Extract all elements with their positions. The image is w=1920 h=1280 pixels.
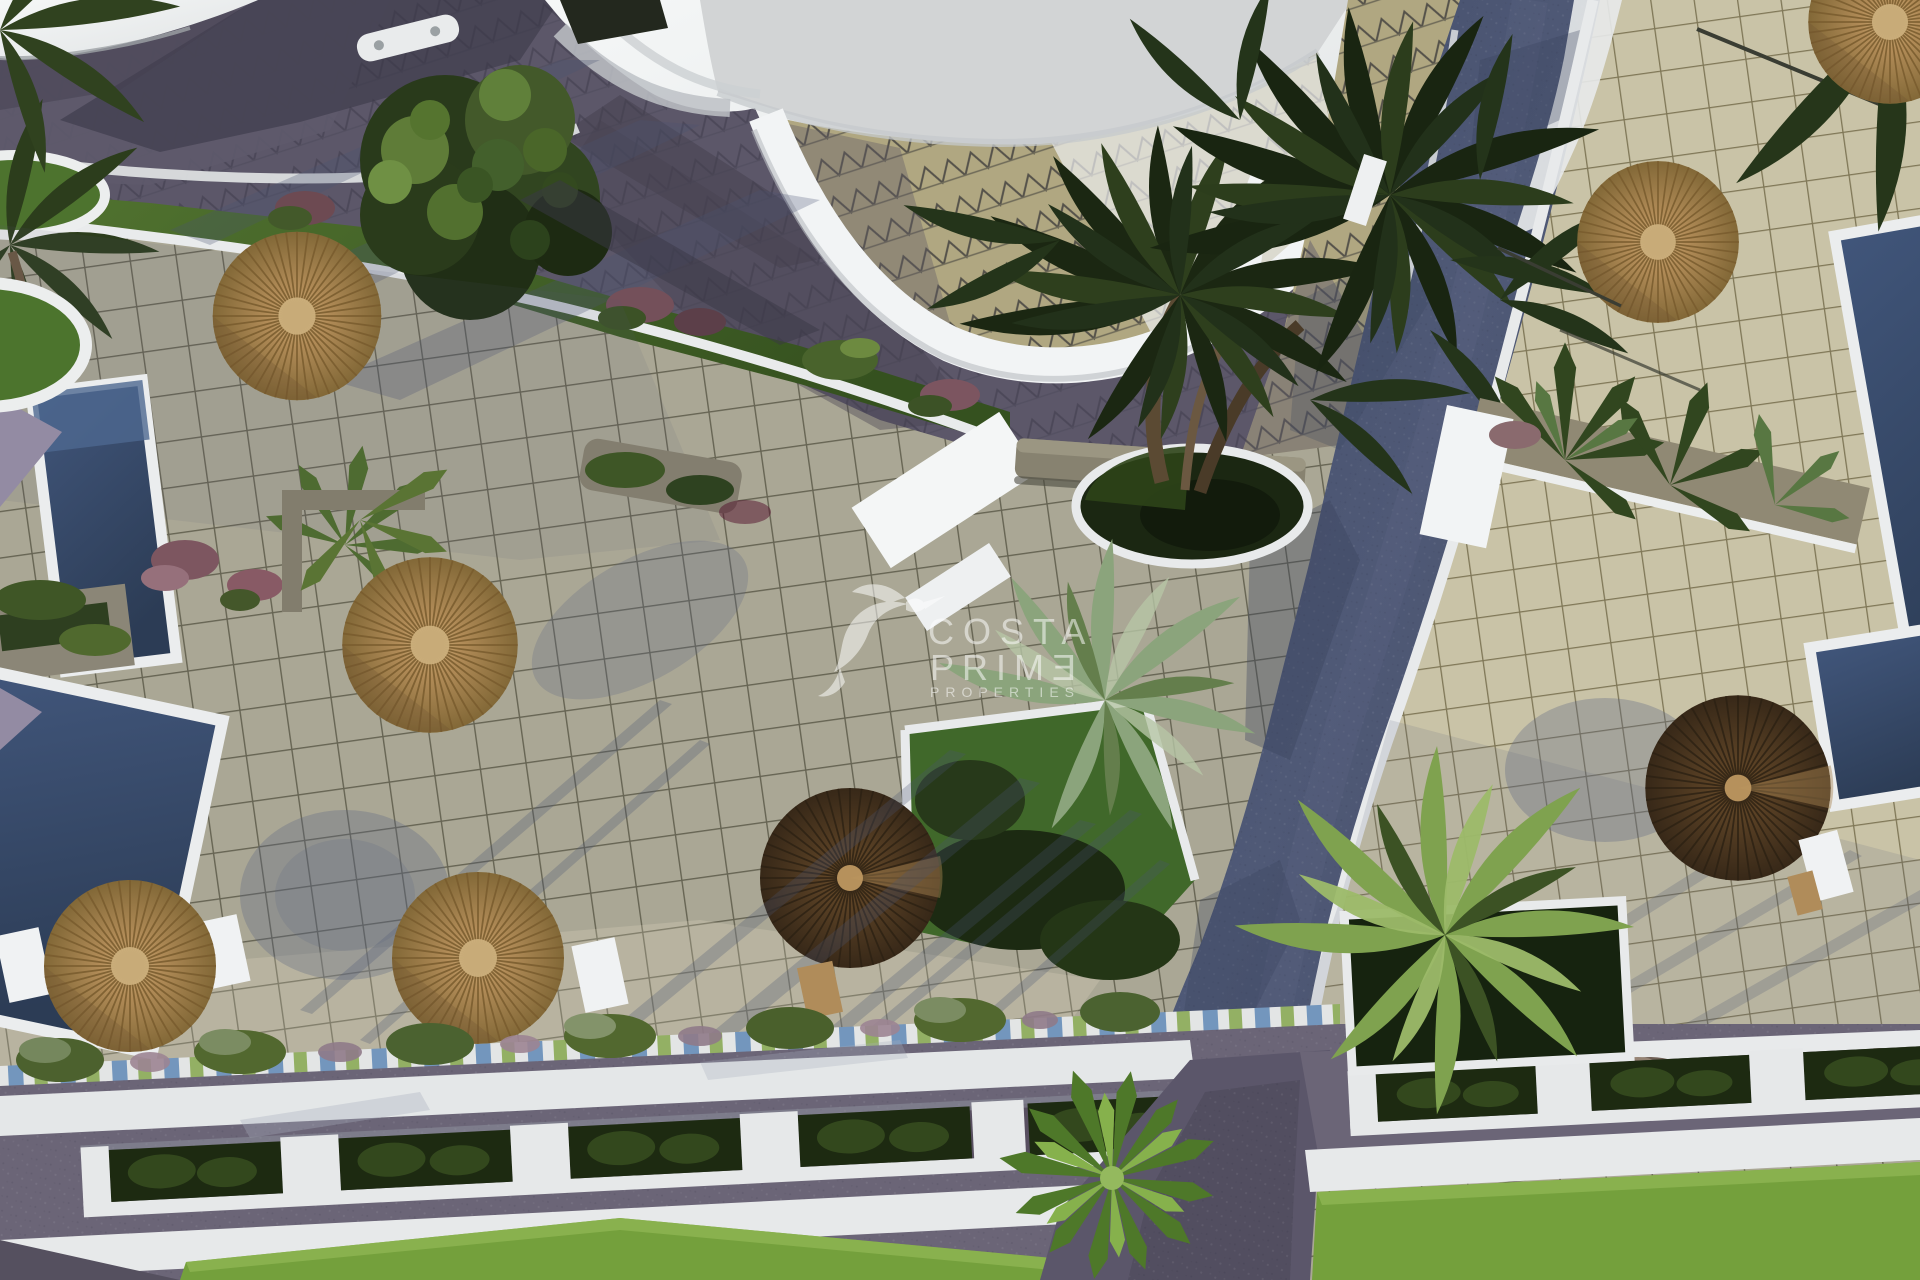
svg-text:PROPERTIES: PROPERTIES (930, 684, 1080, 700)
svg-text:COSTA: COSTA (928, 611, 1094, 652)
svg-text:PRIMƎ: PRIMƎ (930, 647, 1084, 688)
